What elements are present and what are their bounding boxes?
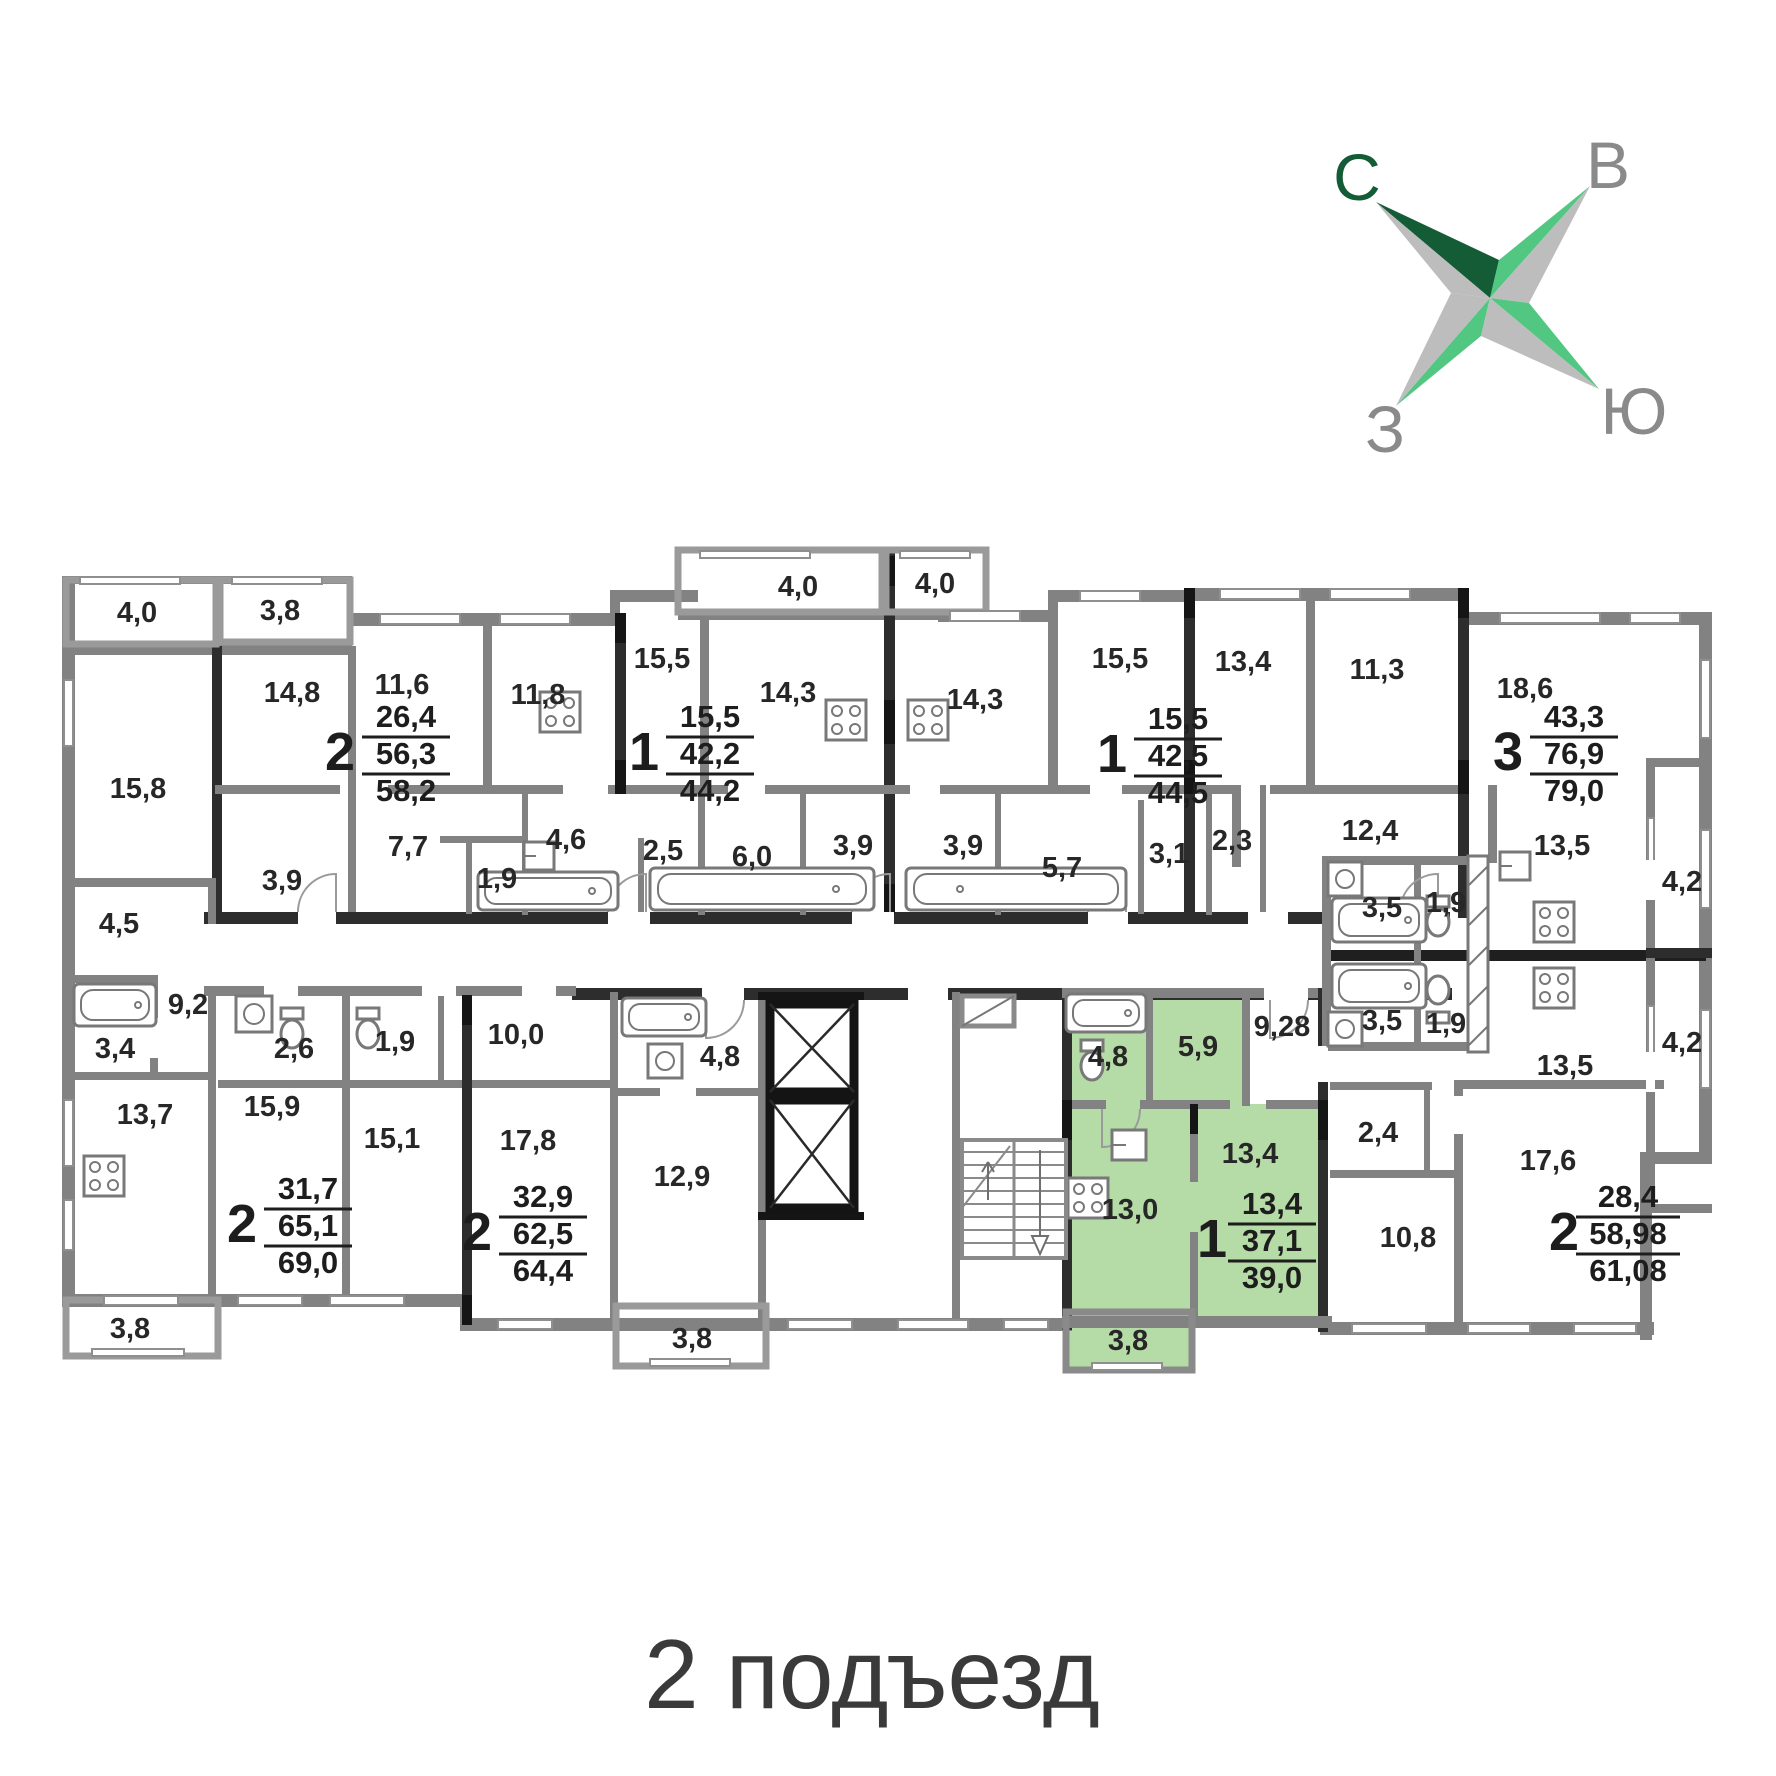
compass-south-label: Ю [1601, 374, 1668, 448]
washing-machine-icon [1328, 862, 1362, 896]
room-area-label: 13,5 [1534, 830, 1590, 862]
apartment-living-area: 31,7 [278, 1171, 338, 1206]
apartment-summary: 2 31,7 65,1 69,0 [227, 1171, 352, 1280]
room-area-label: 7,7 [388, 831, 428, 863]
room-area-label: 9,28 [1254, 1011, 1310, 1043]
apartment-area: 58,98 [1589, 1216, 1667, 1251]
room-area-label: 3,5 [1362, 1005, 1402, 1037]
room-area-label: 14,3 [947, 684, 1003, 716]
bathtub-icon [650, 868, 874, 910]
bathtub-icon [1332, 964, 1426, 1008]
room-area-label: 14,8 [264, 677, 320, 709]
apartment-area: 62,5 [513, 1216, 573, 1251]
room-area-label: 3,4 [95, 1033, 135, 1065]
room-area-label: 15,9 [244, 1091, 300, 1123]
apartment-area: 56,3 [376, 736, 436, 771]
apartment-area: 65,1 [278, 1208, 338, 1243]
room-area-label: 12,9 [654, 1161, 710, 1193]
room-area-label: 13,5 [1537, 1050, 1593, 1082]
apartment-summary: 1 15,5 42,5 44,5 [1097, 701, 1222, 810]
stove-icon [1534, 968, 1574, 1008]
room-area-label: 1,9 [1426, 1008, 1466, 1040]
room-area-label: 4,0 [915, 568, 955, 600]
room-area-label: 4,8 [700, 1041, 740, 1073]
room-area-label: 15,1 [364, 1123, 420, 1155]
room-area-label: 9,2 [168, 989, 208, 1021]
apartment-living-area: 13,4 [1242, 1186, 1303, 1221]
room-area-label: 10,8 [1380, 1222, 1436, 1254]
bathtub-icon [1066, 994, 1146, 1032]
room-area-label: 4,2 [1662, 866, 1702, 898]
bathtub-icon [622, 998, 706, 1036]
room-area-label: 1,9 [477, 863, 517, 895]
room-area-label: 13,7 [117, 1099, 173, 1131]
apartment-living-area: 43,3 [1544, 699, 1604, 734]
bathtub-icon [906, 868, 1126, 910]
apartment-total-area: 61,08 [1589, 1253, 1667, 1288]
room-area-label: 4,8 [1088, 1041, 1128, 1073]
apartment-total-area: 44,5 [1148, 775, 1208, 810]
apartment-rooms-count: 2 [462, 1202, 492, 1262]
room-area-label: 2,5 [643, 835, 683, 867]
room-area-label: 3,5 [1362, 892, 1402, 924]
room-area-label: 13,4 [1222, 1138, 1278, 1170]
washing-machine-icon [648, 1044, 682, 1078]
washing-machine-icon [236, 996, 272, 1032]
room-area-label: 3,8 [672, 1323, 712, 1355]
room-area-label: 4,5 [99, 908, 139, 940]
room-area-label: 6,0 [732, 841, 772, 873]
room-area-label: 11,6 [375, 669, 430, 701]
compass-east-label: В [1586, 128, 1630, 202]
room-area-label: 17,8 [500, 1125, 556, 1157]
room-area-label: 12,4 [1342, 815, 1398, 847]
room-area-label: 15,5 [1092, 643, 1148, 675]
apartment-area: 37,1 [1242, 1223, 1302, 1258]
room-area-label: 2,6 [274, 1033, 314, 1065]
room-area-label: 1,9 [375, 1026, 415, 1058]
apartment-rooms-count: 3 [1493, 722, 1523, 782]
floor-plan-figure: 4,0 3,8 14,8 11,6 11,8 15,5 4,0 4,0 14,3… [0, 0, 1776, 1776]
stove-icon [84, 1156, 124, 1196]
apartment-living-area: 15,5 [1148, 701, 1208, 736]
room-area-label: 11,8 [511, 679, 566, 711]
room-area-label: 5,9 [1178, 1031, 1218, 1063]
room-area-label: 4,6 [546, 824, 586, 856]
room-area-label: 4,0 [778, 571, 818, 603]
room-area-label: 2,3 [1212, 825, 1252, 857]
apartment-living-area: 15,5 [680, 699, 740, 734]
room-area-label: 4,2 [1662, 1027, 1702, 1059]
room-area-label: 13,0 [1102, 1194, 1158, 1226]
room-area-label: 4,0 [117, 597, 157, 629]
apartment-rooms-count: 1 [1197, 1209, 1227, 1269]
sink-icon [1500, 852, 1530, 880]
washing-machine-icon [1328, 1012, 1362, 1046]
apartment-summary: 2 26,4 56,3 58,2 [325, 699, 450, 808]
room-area-label: 17,6 [1520, 1145, 1576, 1177]
room-area-label: 3,8 [1108, 1325, 1148, 1357]
apartment-summary: 2 32,9 62,5 64,4 [462, 1179, 587, 1288]
bathtub-icon [74, 984, 156, 1026]
apartment-area: 42,2 [680, 736, 740, 771]
stove-icon [826, 700, 866, 740]
apartment-living-area: 28,4 [1598, 1179, 1659, 1214]
room-area-label: 2,4 [1358, 1117, 1398, 1149]
room-area-label: 15,8 [110, 773, 166, 805]
room-area-label: 10,0 [488, 1019, 544, 1051]
room-area-label: 3,9 [262, 865, 302, 897]
apartment-rooms-count: 2 [1549, 1202, 1579, 1262]
room-area-label: 3,8 [260, 595, 300, 627]
compass-north-label: С [1333, 140, 1381, 214]
room-area-label: 15,5 [634, 643, 690, 675]
elevator-shafts [770, 1004, 854, 1208]
apartment-total-area: 44,2 [680, 773, 740, 808]
sink-icon [1112, 1130, 1146, 1160]
apartment-total-area: 58,2 [376, 773, 436, 808]
apartment-total-area: 79,0 [1544, 773, 1604, 808]
staircase [962, 996, 1066, 1258]
room-area-label: 3,9 [943, 830, 983, 862]
apartment-rooms-count: 1 [1097, 724, 1127, 784]
apartment-summary: 2 28,4 58,98 61,08 [1549, 1179, 1680, 1288]
room-area-label: 5,7 [1042, 852, 1082, 884]
apartment-rooms-count: 1 [629, 722, 659, 782]
apartment-rooms-count: 2 [227, 1194, 257, 1254]
apartment-total-area: 69,0 [278, 1245, 338, 1280]
floor-plan-page: 4,0 3,8 14,8 11,6 11,8 15,5 4,0 4,0 14,3… [0, 0, 1776, 1776]
apartment-living-area: 32,9 [513, 1179, 573, 1214]
stove-icon [1534, 902, 1574, 942]
room-area-label: 1,9 [1426, 887, 1466, 919]
room-area-label: 14,3 [760, 677, 816, 709]
compass-rose: С В З Ю [1333, 128, 1667, 466]
room-area-label: 13,4 [1215, 646, 1271, 678]
apartment-total-area: 64,4 [513, 1253, 574, 1288]
stove-icon [908, 700, 948, 740]
room-area-label: 11,3 [1350, 654, 1405, 686]
apartment-area: 42,5 [1148, 738, 1208, 773]
apartment-area: 76,9 [1544, 736, 1604, 771]
compass-west-label: З [1365, 392, 1405, 466]
room-area-label: 3,8 [110, 1313, 150, 1345]
apartment-rooms-count: 2 [325, 722, 355, 782]
apartment-total-area: 39,0 [1242, 1260, 1302, 1295]
apartment-living-area: 26,4 [376, 699, 437, 734]
vent-shaft-icon [1468, 856, 1488, 1052]
apartment-summary: 3 43,3 76,9 79,0 [1493, 699, 1618, 808]
room-area-label: 3,9 [833, 830, 873, 862]
room-area-label: 3,1 [1149, 838, 1189, 870]
entrance-caption: 2 подъезд [644, 1619, 1100, 1729]
